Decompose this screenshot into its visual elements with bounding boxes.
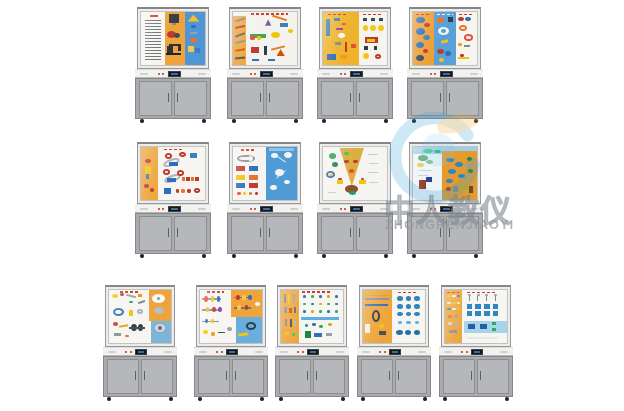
display-item (280, 23, 288, 28)
cabinet-door-left (411, 216, 444, 251)
display-case (441, 285, 511, 347)
display-item (249, 175, 258, 180)
vent-left-icon (322, 208, 330, 210)
display-item (311, 303, 314, 306)
display-item (398, 321, 402, 324)
display-item (302, 291, 331, 293)
display-item (363, 18, 367, 21)
caster-wheel-icon (260, 397, 264, 401)
display-item (182, 177, 185, 182)
display-item (178, 45, 181, 50)
vent-right-icon (470, 208, 478, 210)
cabinet-door-left (321, 81, 354, 116)
display-item (416, 14, 431, 16)
display-item (271, 153, 277, 158)
display-case (359, 285, 429, 347)
display-item (249, 166, 258, 171)
indicator-light-icon (379, 351, 381, 353)
cabinet-base (275, 356, 349, 397)
display-item (270, 185, 276, 190)
display-item (319, 295, 322, 298)
cabinet-base (439, 356, 513, 397)
display-item (437, 17, 445, 23)
display-item (194, 188, 200, 192)
display-cabinet-5 (135, 142, 211, 258)
indicator-light-icon (158, 208, 160, 210)
display-item (319, 325, 323, 328)
vent-right-icon (290, 208, 298, 210)
display-artwork (280, 289, 344, 344)
display-item (455, 162, 463, 167)
display-artwork (412, 11, 478, 66)
cabinet-base (227, 78, 303, 119)
display-item (359, 180, 365, 184)
cabinet-base (407, 78, 483, 119)
display-item (181, 189, 185, 192)
display-item (250, 36, 254, 39)
display-item (271, 32, 279, 38)
cabinet-door-left (279, 359, 311, 394)
door-handle-icon (480, 371, 482, 380)
display-item (284, 294, 286, 302)
display-item (414, 304, 420, 308)
display-item (218, 307, 222, 312)
display-item (294, 307, 296, 313)
vent-left-icon (232, 73, 240, 75)
display-item (204, 296, 208, 301)
cabinet-door-right (395, 359, 427, 394)
display-item (285, 319, 287, 326)
display-item (314, 333, 321, 336)
display-item (164, 149, 182, 151)
display-cabinet-8 (407, 142, 483, 258)
display-item (458, 43, 462, 46)
display-item (453, 186, 458, 192)
display-item (188, 46, 194, 52)
control-display (350, 71, 363, 77)
display-item (379, 324, 384, 328)
display-item (379, 331, 386, 334)
display-item (363, 25, 369, 31)
control-panel (317, 69, 393, 78)
indicator-light-icon (340, 73, 342, 75)
display-artwork (322, 146, 388, 201)
display-item (423, 149, 433, 153)
caster-wheel-icon (474, 254, 478, 258)
display-item (284, 307, 286, 313)
display-item (406, 296, 412, 300)
control-panel (135, 204, 211, 213)
display-item (240, 157, 244, 161)
display-item (195, 177, 198, 182)
display-item (379, 18, 383, 21)
display-artwork (140, 146, 206, 201)
vent-right-icon (500, 351, 508, 353)
display-item (397, 304, 403, 308)
caster-wheel-icon (474, 119, 478, 123)
display-item (252, 59, 258, 61)
cabinet-base (357, 356, 431, 397)
display-item (458, 57, 469, 60)
vent-left-icon (140, 208, 148, 210)
door-handle-icon (359, 228, 361, 237)
display-item (167, 178, 177, 182)
display-item (327, 54, 336, 59)
door-handle-icon (440, 228, 442, 237)
display-artwork (232, 11, 298, 66)
display-item (303, 295, 306, 298)
display-item (448, 17, 454, 22)
control-panel (357, 347, 431, 356)
display-item (288, 294, 290, 304)
display-item (190, 153, 197, 157)
cabinet-door-left (107, 359, 139, 394)
display-item (125, 335, 129, 338)
cabinet-door-right (356, 216, 389, 251)
display-item (468, 324, 475, 329)
display-item (236, 295, 240, 300)
display-item (218, 332, 225, 334)
caster-wheel-icon (294, 254, 298, 258)
cabinet-door-left (411, 81, 444, 116)
display-item (187, 189, 191, 192)
display-item (186, 177, 189, 182)
indicator-light-icon (430, 208, 432, 210)
indicator-light-icon (384, 351, 386, 353)
vent-right-icon (255, 351, 263, 353)
display-item (423, 35, 429, 40)
vent-left-icon (444, 351, 452, 353)
display-item (446, 179, 452, 183)
display-item (469, 296, 470, 301)
display-artwork (140, 11, 206, 66)
display-artwork (108, 289, 172, 344)
display-item (312, 323, 316, 326)
cabinet-door-right (141, 359, 173, 394)
display-item (406, 312, 412, 316)
display-item (129, 310, 133, 316)
door-handle-icon (359, 93, 361, 102)
display-item (396, 330, 402, 335)
display-cabinet-7 (317, 142, 393, 258)
indicator-light-icon (434, 73, 436, 75)
cabinet-base (317, 213, 393, 254)
display-item (146, 174, 149, 179)
door-handle-icon (144, 371, 146, 380)
display-item (119, 324, 128, 327)
display-item (172, 23, 175, 25)
door-handle-icon (260, 228, 262, 237)
display-artwork (199, 289, 263, 344)
display-item (255, 302, 260, 306)
display-item (467, 304, 473, 309)
cabinet-door-right (266, 216, 299, 251)
control-display (260, 206, 273, 212)
display-item (406, 304, 412, 308)
display-case (409, 7, 481, 69)
display-item (492, 328, 496, 331)
vent-left-icon (362, 351, 370, 353)
display-item (179, 152, 186, 157)
display-item (365, 304, 387, 306)
display-item (265, 19, 271, 25)
display-item (164, 188, 171, 193)
caster-wheel-icon (294, 119, 298, 123)
control-display (307, 349, 320, 355)
display-item (328, 14, 347, 16)
cabinet-door-right (446, 216, 479, 251)
control-display (389, 349, 402, 355)
door-handle-icon (350, 93, 352, 102)
display-item (361, 178, 364, 180)
door-handle-icon (135, 371, 137, 380)
door-handle-icon (177, 93, 179, 102)
display-case (105, 285, 175, 347)
caster-wheel-icon (384, 254, 388, 258)
cabinet-base (407, 213, 483, 254)
display-cabinet-12 (357, 285, 431, 401)
indicator-light-icon (130, 351, 132, 353)
display-item (328, 323, 332, 326)
door-handle-icon (316, 371, 318, 380)
vent-left-icon (108, 351, 116, 353)
control-panel (194, 347, 268, 356)
display-item (448, 169, 456, 174)
display-item (177, 170, 184, 175)
display-item (363, 53, 369, 59)
display-item (158, 326, 162, 330)
display-item (205, 319, 208, 324)
control-panel (439, 347, 513, 356)
display-item (284, 152, 292, 158)
display-item (211, 319, 214, 324)
display-item (138, 294, 143, 297)
display-item (169, 14, 179, 23)
display-item (145, 166, 151, 174)
vent-right-icon (336, 351, 344, 353)
display-item (284, 180, 290, 184)
vent-left-icon (412, 208, 420, 210)
display-item (236, 317, 262, 344)
display-item (248, 156, 254, 161)
indicator-light-icon (158, 73, 160, 75)
display-item (303, 310, 306, 313)
display-item (454, 323, 458, 326)
display-cabinet-9 (103, 285, 177, 401)
display-item (303, 303, 306, 306)
caster-wheel-icon (505, 397, 509, 401)
display-item (174, 33, 180, 38)
door-handle-icon (177, 228, 179, 237)
display-item (465, 17, 471, 21)
display-item (406, 321, 410, 324)
door-handle-icon (168, 93, 170, 102)
cabinet-door-left (139, 216, 172, 251)
display-item (416, 17, 424, 23)
vent-left-icon (140, 73, 148, 75)
display-item (120, 293, 124, 296)
display-item (493, 304, 499, 309)
cabinet-door-left (321, 216, 354, 251)
display-item (268, 59, 274, 61)
caster-wheel-icon (443, 397, 447, 401)
caster-wheel-icon (322, 254, 326, 258)
display-item (374, 46, 378, 50)
display-item (138, 299, 146, 303)
cabinet-base (317, 78, 393, 119)
display-item (327, 303, 330, 306)
display-artwork (362, 289, 426, 344)
display-item (415, 321, 419, 324)
display-item (365, 324, 370, 333)
control-panel (103, 347, 177, 356)
control-display (168, 71, 181, 77)
vent-left-icon (322, 73, 330, 75)
indicator-light-icon (430, 73, 432, 75)
display-item (475, 311, 481, 316)
display-item (271, 45, 285, 50)
cabinet-door-right (313, 359, 345, 394)
caster-wheel-icon (232, 119, 236, 123)
cabinet-door-right (356, 81, 389, 116)
door-handle-icon (350, 228, 352, 237)
caster-wheel-icon (232, 254, 236, 258)
caster-wheel-icon (412, 119, 416, 123)
display-item (469, 186, 473, 192)
display-item (176, 189, 180, 192)
display-item (207, 291, 223, 293)
vent-left-icon (232, 208, 240, 210)
display-item (150, 15, 158, 17)
display-item (251, 13, 288, 15)
display-item (301, 317, 338, 320)
display-item (113, 308, 124, 316)
caster-wheel-icon (279, 397, 283, 401)
control-panel (407, 69, 483, 78)
display-item (237, 192, 240, 195)
display-item (364, 46, 368, 50)
display-case (409, 142, 481, 204)
display-item (426, 177, 431, 182)
display-item (463, 179, 472, 181)
caster-wheel-icon (341, 397, 345, 401)
vent-left-icon (199, 351, 207, 353)
control-panel (275, 347, 349, 356)
display-item (467, 157, 472, 161)
display-artwork (412, 146, 478, 201)
display-item (319, 303, 322, 306)
caster-wheel-icon (202, 119, 206, 123)
display-cabinet-13 (439, 285, 513, 401)
indicator-light-icon (250, 73, 252, 75)
caster-wheel-icon (322, 119, 326, 123)
display-item (195, 48, 200, 53)
cabinet-door-right (174, 81, 207, 116)
display-item (211, 296, 215, 301)
display-item (236, 166, 245, 171)
display-case (229, 7, 301, 69)
vent-right-icon (380, 73, 388, 75)
vent-right-icon (164, 351, 172, 353)
door-handle-icon (389, 371, 391, 380)
indicator-light-icon (221, 351, 223, 353)
control-display (471, 349, 484, 355)
display-case (277, 285, 347, 347)
display-cabinet-10 (194, 285, 268, 401)
display-item (467, 311, 473, 316)
door-handle-icon (307, 371, 309, 380)
display-case (196, 285, 266, 347)
cabinet-base (103, 356, 177, 397)
display-item (367, 39, 375, 42)
display-item (328, 192, 336, 193)
display-item (447, 292, 459, 294)
cabinet-door-right (446, 81, 479, 116)
display-item (165, 153, 172, 158)
display-item (434, 150, 440, 153)
display-item (289, 308, 291, 313)
display-item (169, 162, 178, 166)
caster-wheel-icon (140, 119, 144, 123)
indicator-light-icon (162, 208, 164, 210)
display-item (458, 17, 464, 21)
display-item (327, 310, 330, 313)
cabinet-door-right (266, 81, 299, 116)
display-item (365, 295, 389, 297)
display-item (257, 36, 261, 39)
display-item (369, 163, 378, 164)
display-item (237, 305, 241, 310)
display-item (452, 308, 455, 310)
display-item (251, 47, 259, 53)
display-item (351, 44, 356, 48)
cabinet-door-left (231, 81, 264, 116)
control-display (226, 349, 239, 355)
display-artwork (444, 289, 508, 344)
display-cabinet-6 (227, 142, 303, 258)
display-cabinet-3 (317, 7, 393, 123)
display-item (414, 296, 420, 300)
display-item (329, 174, 333, 177)
cabinet-door-right (232, 359, 264, 394)
caster-wheel-icon (412, 254, 416, 258)
display-item (326, 19, 330, 36)
indicator-light-icon (340, 208, 342, 210)
door-handle-icon (226, 371, 228, 380)
display-item (206, 307, 210, 312)
display-item (447, 308, 450, 310)
indicator-light-icon (461, 351, 463, 353)
indicator-light-icon (297, 351, 299, 353)
display-cabinet-11 (275, 285, 349, 401)
display-item (459, 25, 467, 31)
door-handle-icon (449, 93, 451, 102)
control-display (135, 349, 148, 355)
display-item (397, 296, 403, 300)
display-item (243, 192, 246, 195)
display-item (129, 327, 145, 330)
display-item (493, 311, 499, 316)
display-item (255, 192, 258, 195)
display-item (445, 51, 451, 56)
display-item (368, 154, 378, 155)
display-item (163, 169, 171, 175)
display-item (190, 38, 196, 43)
display-item (416, 28, 425, 35)
display-item (340, 55, 347, 58)
display-case (229, 142, 301, 204)
caster-wheel-icon (423, 397, 427, 401)
